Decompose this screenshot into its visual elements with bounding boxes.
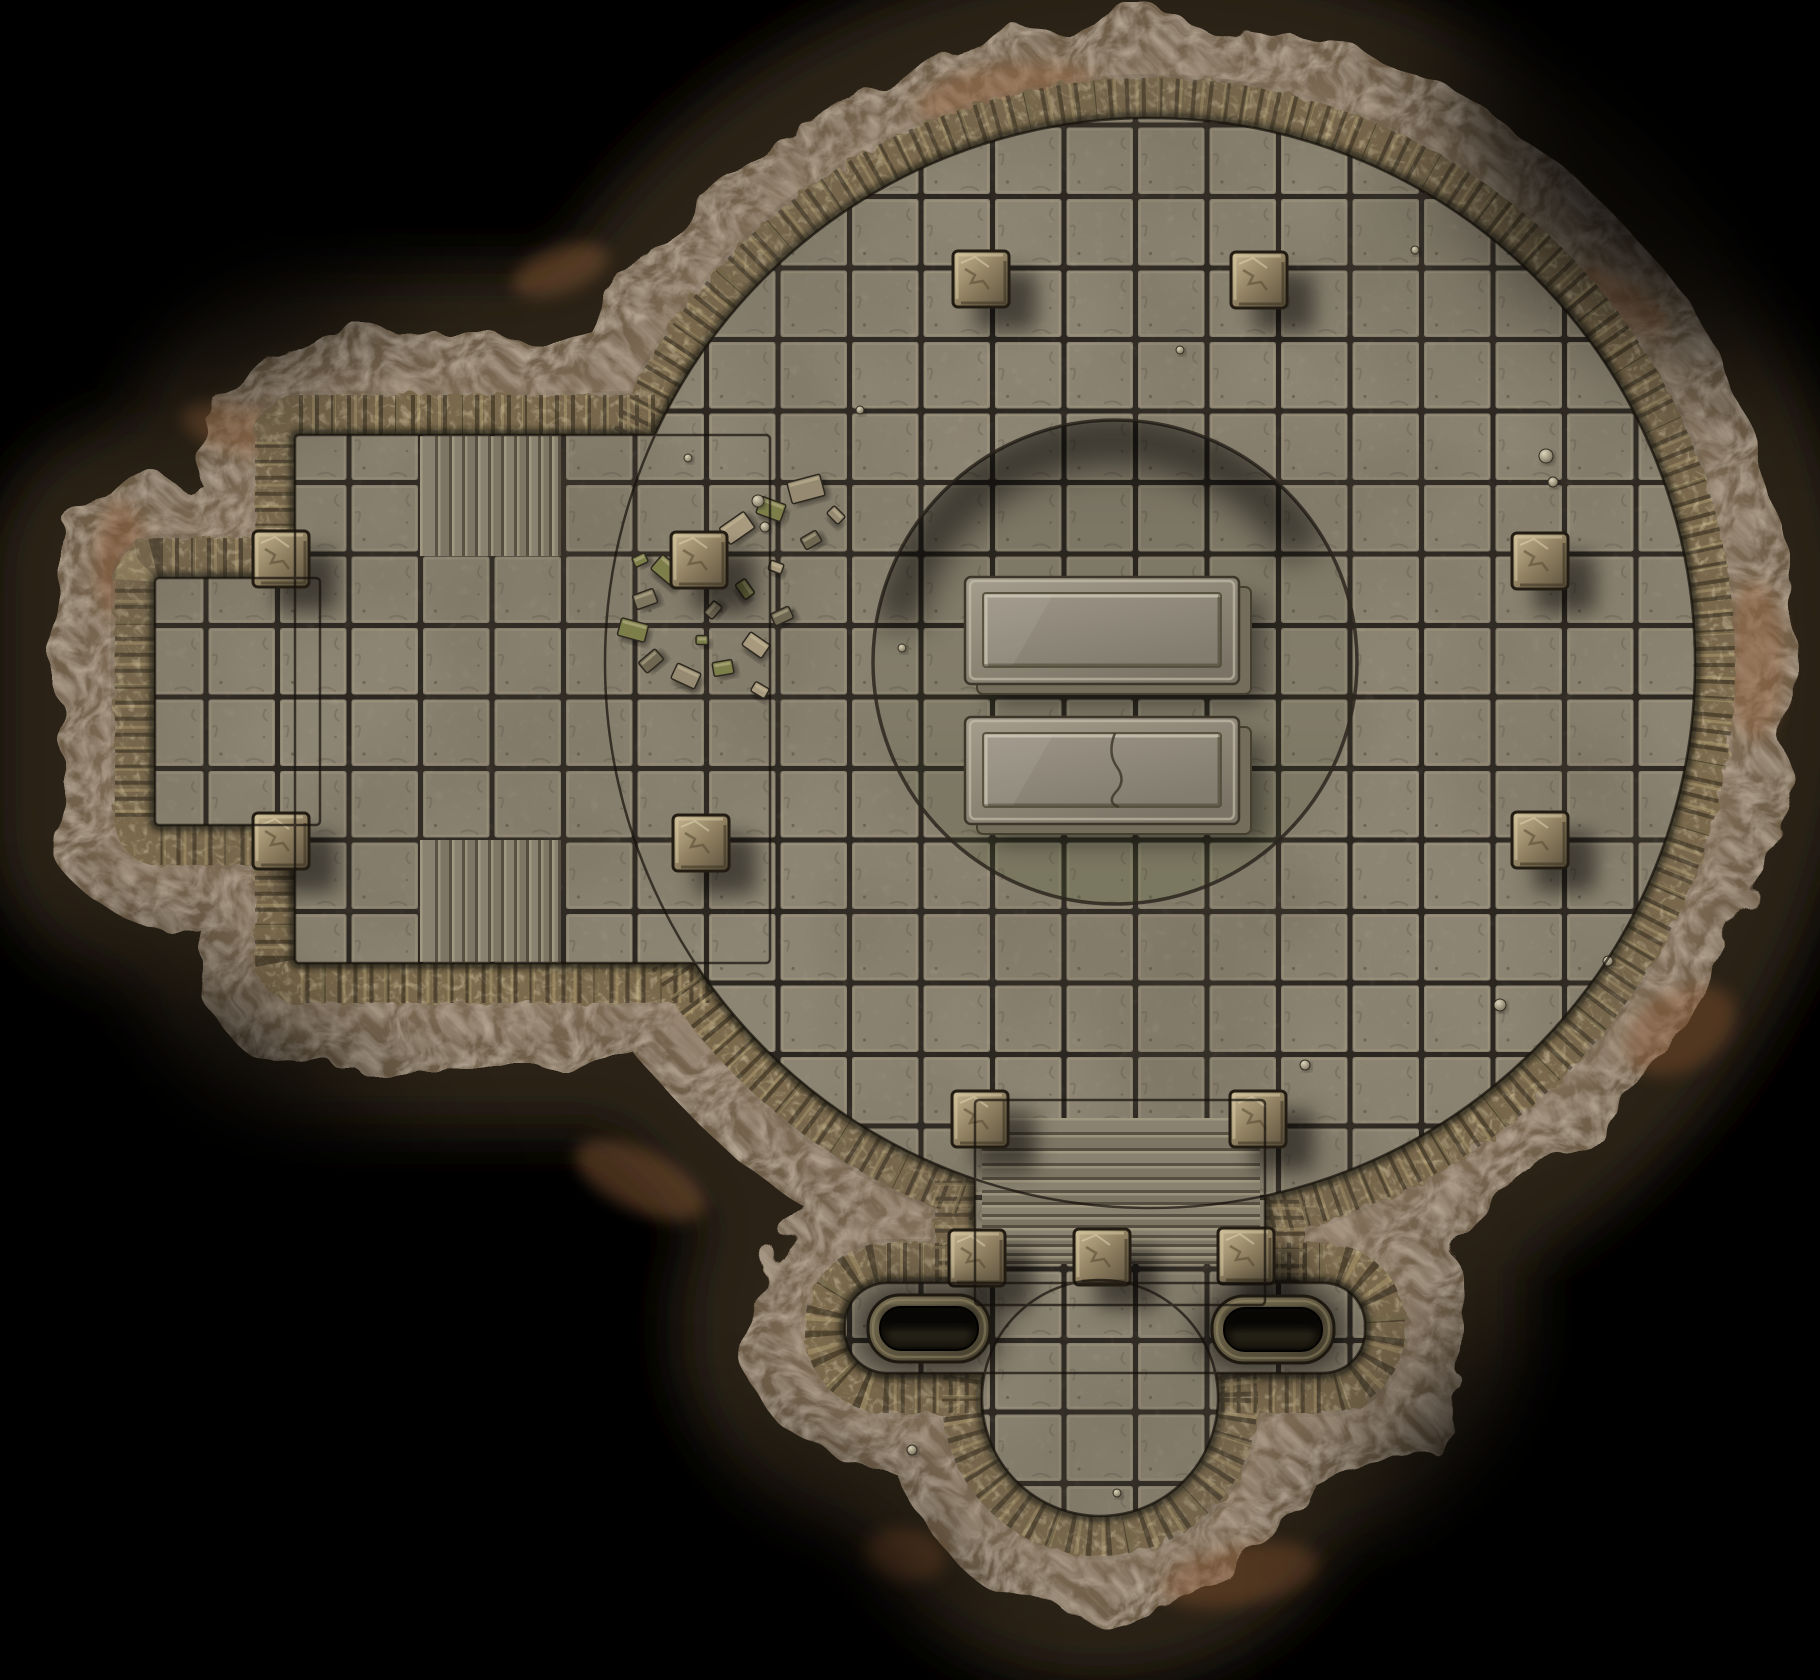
pebble [1176, 346, 1184, 354]
pebble [752, 495, 764, 507]
west-upper-stairs [420, 436, 561, 556]
pebble [684, 454, 692, 462]
pebble [1539, 449, 1553, 463]
pebble [1411, 246, 1419, 254]
pool-basin-east [1200, 1286, 1346, 1374]
pebble [1113, 1489, 1121, 1497]
pebble [760, 522, 770, 532]
pebble [898, 644, 906, 652]
pebble [1300, 1060, 1310, 1070]
stone-slab-1 [965, 577, 1265, 704]
pebble [907, 1445, 917, 1455]
pebble [1548, 477, 1558, 487]
pebble [856, 406, 864, 414]
west-lower-stairs [420, 840, 561, 962]
battlemap-canvas [0, 0, 1820, 1680]
pool-basin-west [856, 1285, 1002, 1373]
pebble [1494, 999, 1506, 1011]
dungeon-battle-map [0, 0, 1820, 1680]
